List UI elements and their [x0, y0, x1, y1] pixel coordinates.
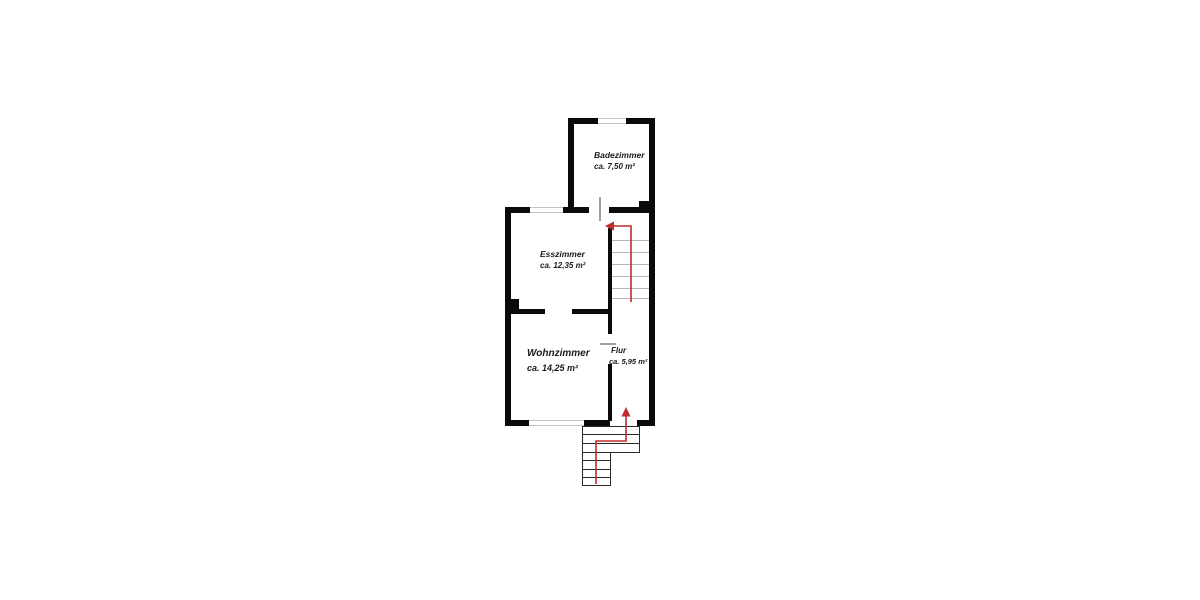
wall-stair-hall-upper [608, 228, 612, 334]
room-name: Flur [611, 346, 647, 357]
window-dining [530, 207, 563, 213]
direction-arrows-layer [0, 0, 1200, 600]
wall-stair-hall-lower [608, 364, 612, 421]
stair-tread [583, 477, 610, 478]
chimney-block-bathroom [639, 201, 651, 213]
room-area: ca. 14,25 m² [527, 361, 590, 375]
room-area: ca. 12,35 m² [540, 260, 585, 272]
stair-tread [583, 469, 610, 470]
floor-plan-canvas: Badezimmer ca. 7,50 m² Esszimmer ca. 12,… [0, 0, 1200, 600]
stair-tread [612, 240, 649, 241]
stair-tread [583, 434, 639, 435]
stair-tread [612, 288, 649, 289]
room-label-badezimmer: Badezimmer ca. 7,50 m² [594, 149, 645, 173]
exterior-stairs-lower [582, 452, 611, 486]
window-bathroom [598, 118, 626, 124]
room-name: Badezimmer [594, 149, 645, 161]
wall-right [649, 118, 655, 426]
stair-tread [583, 460, 610, 461]
door-marker-hall [600, 343, 616, 345]
wall-bathroom-left [568, 118, 574, 213]
stair-tread [612, 276, 649, 277]
room-area: ca. 5,95 m² [609, 357, 647, 368]
room-area: ca. 7,50 m² [594, 161, 645, 173]
room-label-flur: Flur ca. 5,95 m² [609, 346, 647, 367]
room-label-wohnzimmer: Wohnzimmer ca. 14,25 m² [527, 347, 590, 375]
room-label-esszimmer: Esszimmer ca. 12,35 m² [540, 248, 585, 272]
exterior-stairs-upper [582, 426, 640, 453]
stair-tread [612, 252, 649, 253]
stair-tread [612, 298, 649, 299]
stair-tread [612, 264, 649, 265]
window-living [529, 420, 584, 426]
stair-tread [583, 443, 639, 444]
door-marker-bathroom [599, 197, 601, 221]
wall-living-dining-right [572, 309, 612, 314]
room-name: Esszimmer [540, 248, 585, 260]
chimney-block-living [506, 299, 519, 311]
room-name: Wohnzimmer [527, 347, 590, 361]
wall-left [505, 207, 511, 426]
